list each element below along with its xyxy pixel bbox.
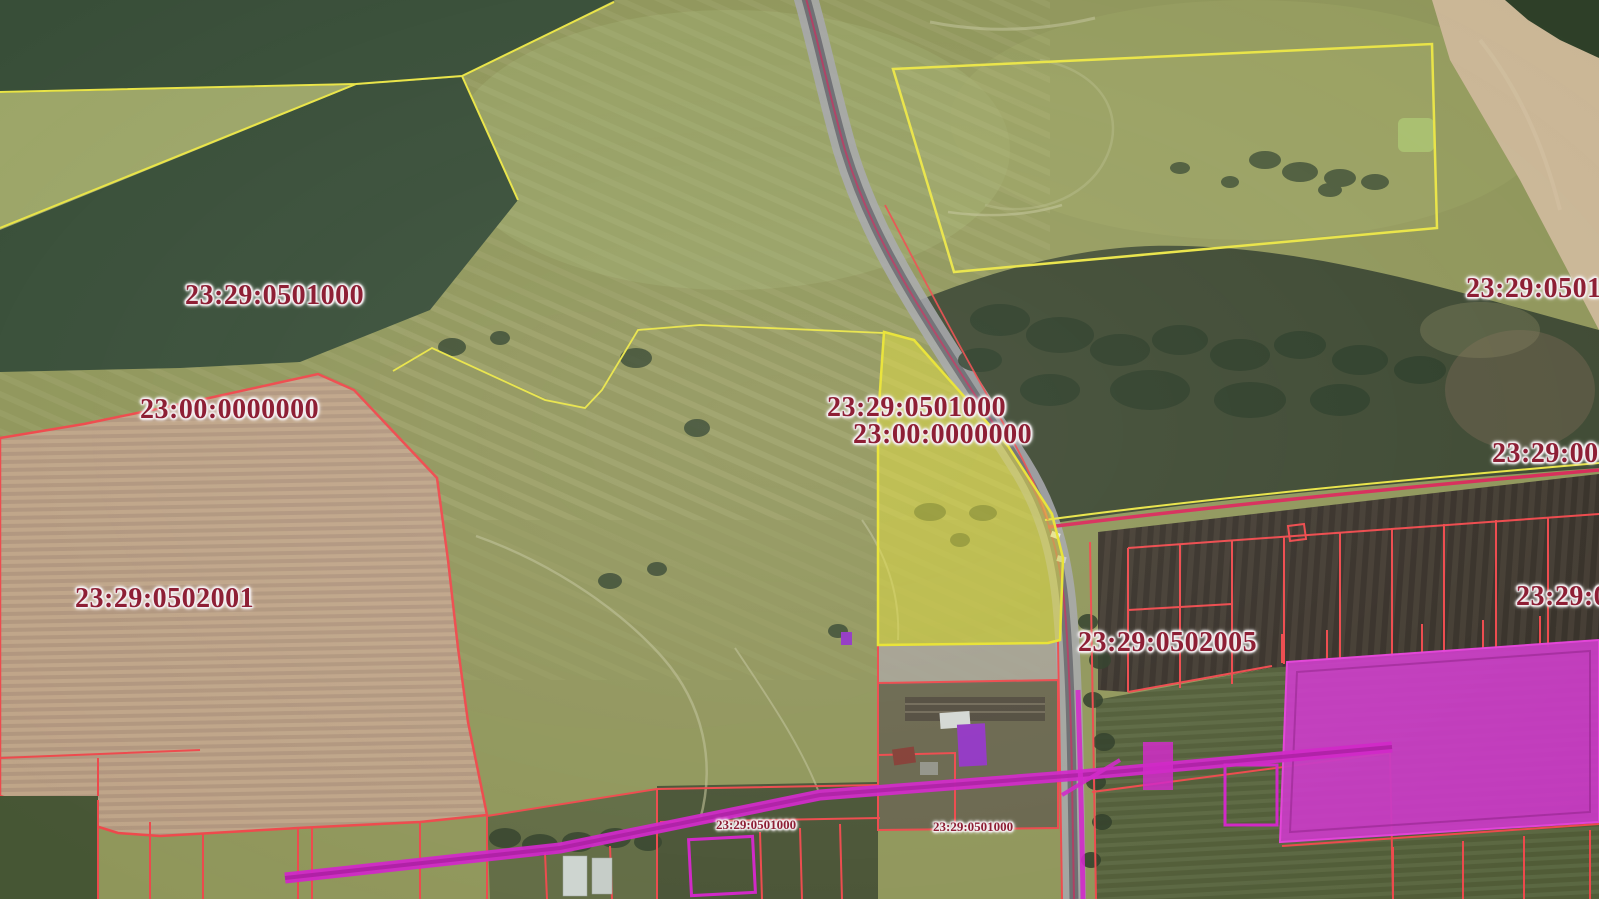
cadastral-label: 23:29:0501000 — [185, 282, 364, 310]
cadastral-map-viewport[interactable]: 23:29:0501000 23:00:0000000 23:29:050200… — [0, 0, 1599, 899]
cadastral-label-truncated: 23:29:0 — [1516, 583, 1599, 611]
cadastral-label: 23:00:0000000 — [853, 421, 1032, 449]
cadastral-label-truncated: 23:29:000 — [1492, 440, 1599, 468]
photo-tint — [0, 0, 1599, 899]
cadastral-label-truncated: 23:29:05010 — [1466, 275, 1599, 303]
cadastral-label: 23:29:0501000 — [827, 394, 1006, 422]
cadastral-label: 23:29:0501000 — [933, 820, 1013, 833]
map-canvas — [0, 0, 1599, 899]
cadastral-label: 23:00:0000000 — [140, 396, 319, 424]
cadastral-label: 23:29:0502005 — [1078, 629, 1257, 657]
cadastral-label: 23:29:0502001 — [75, 585, 254, 613]
cadastral-label: 23:29:0501000 — [716, 818, 796, 831]
